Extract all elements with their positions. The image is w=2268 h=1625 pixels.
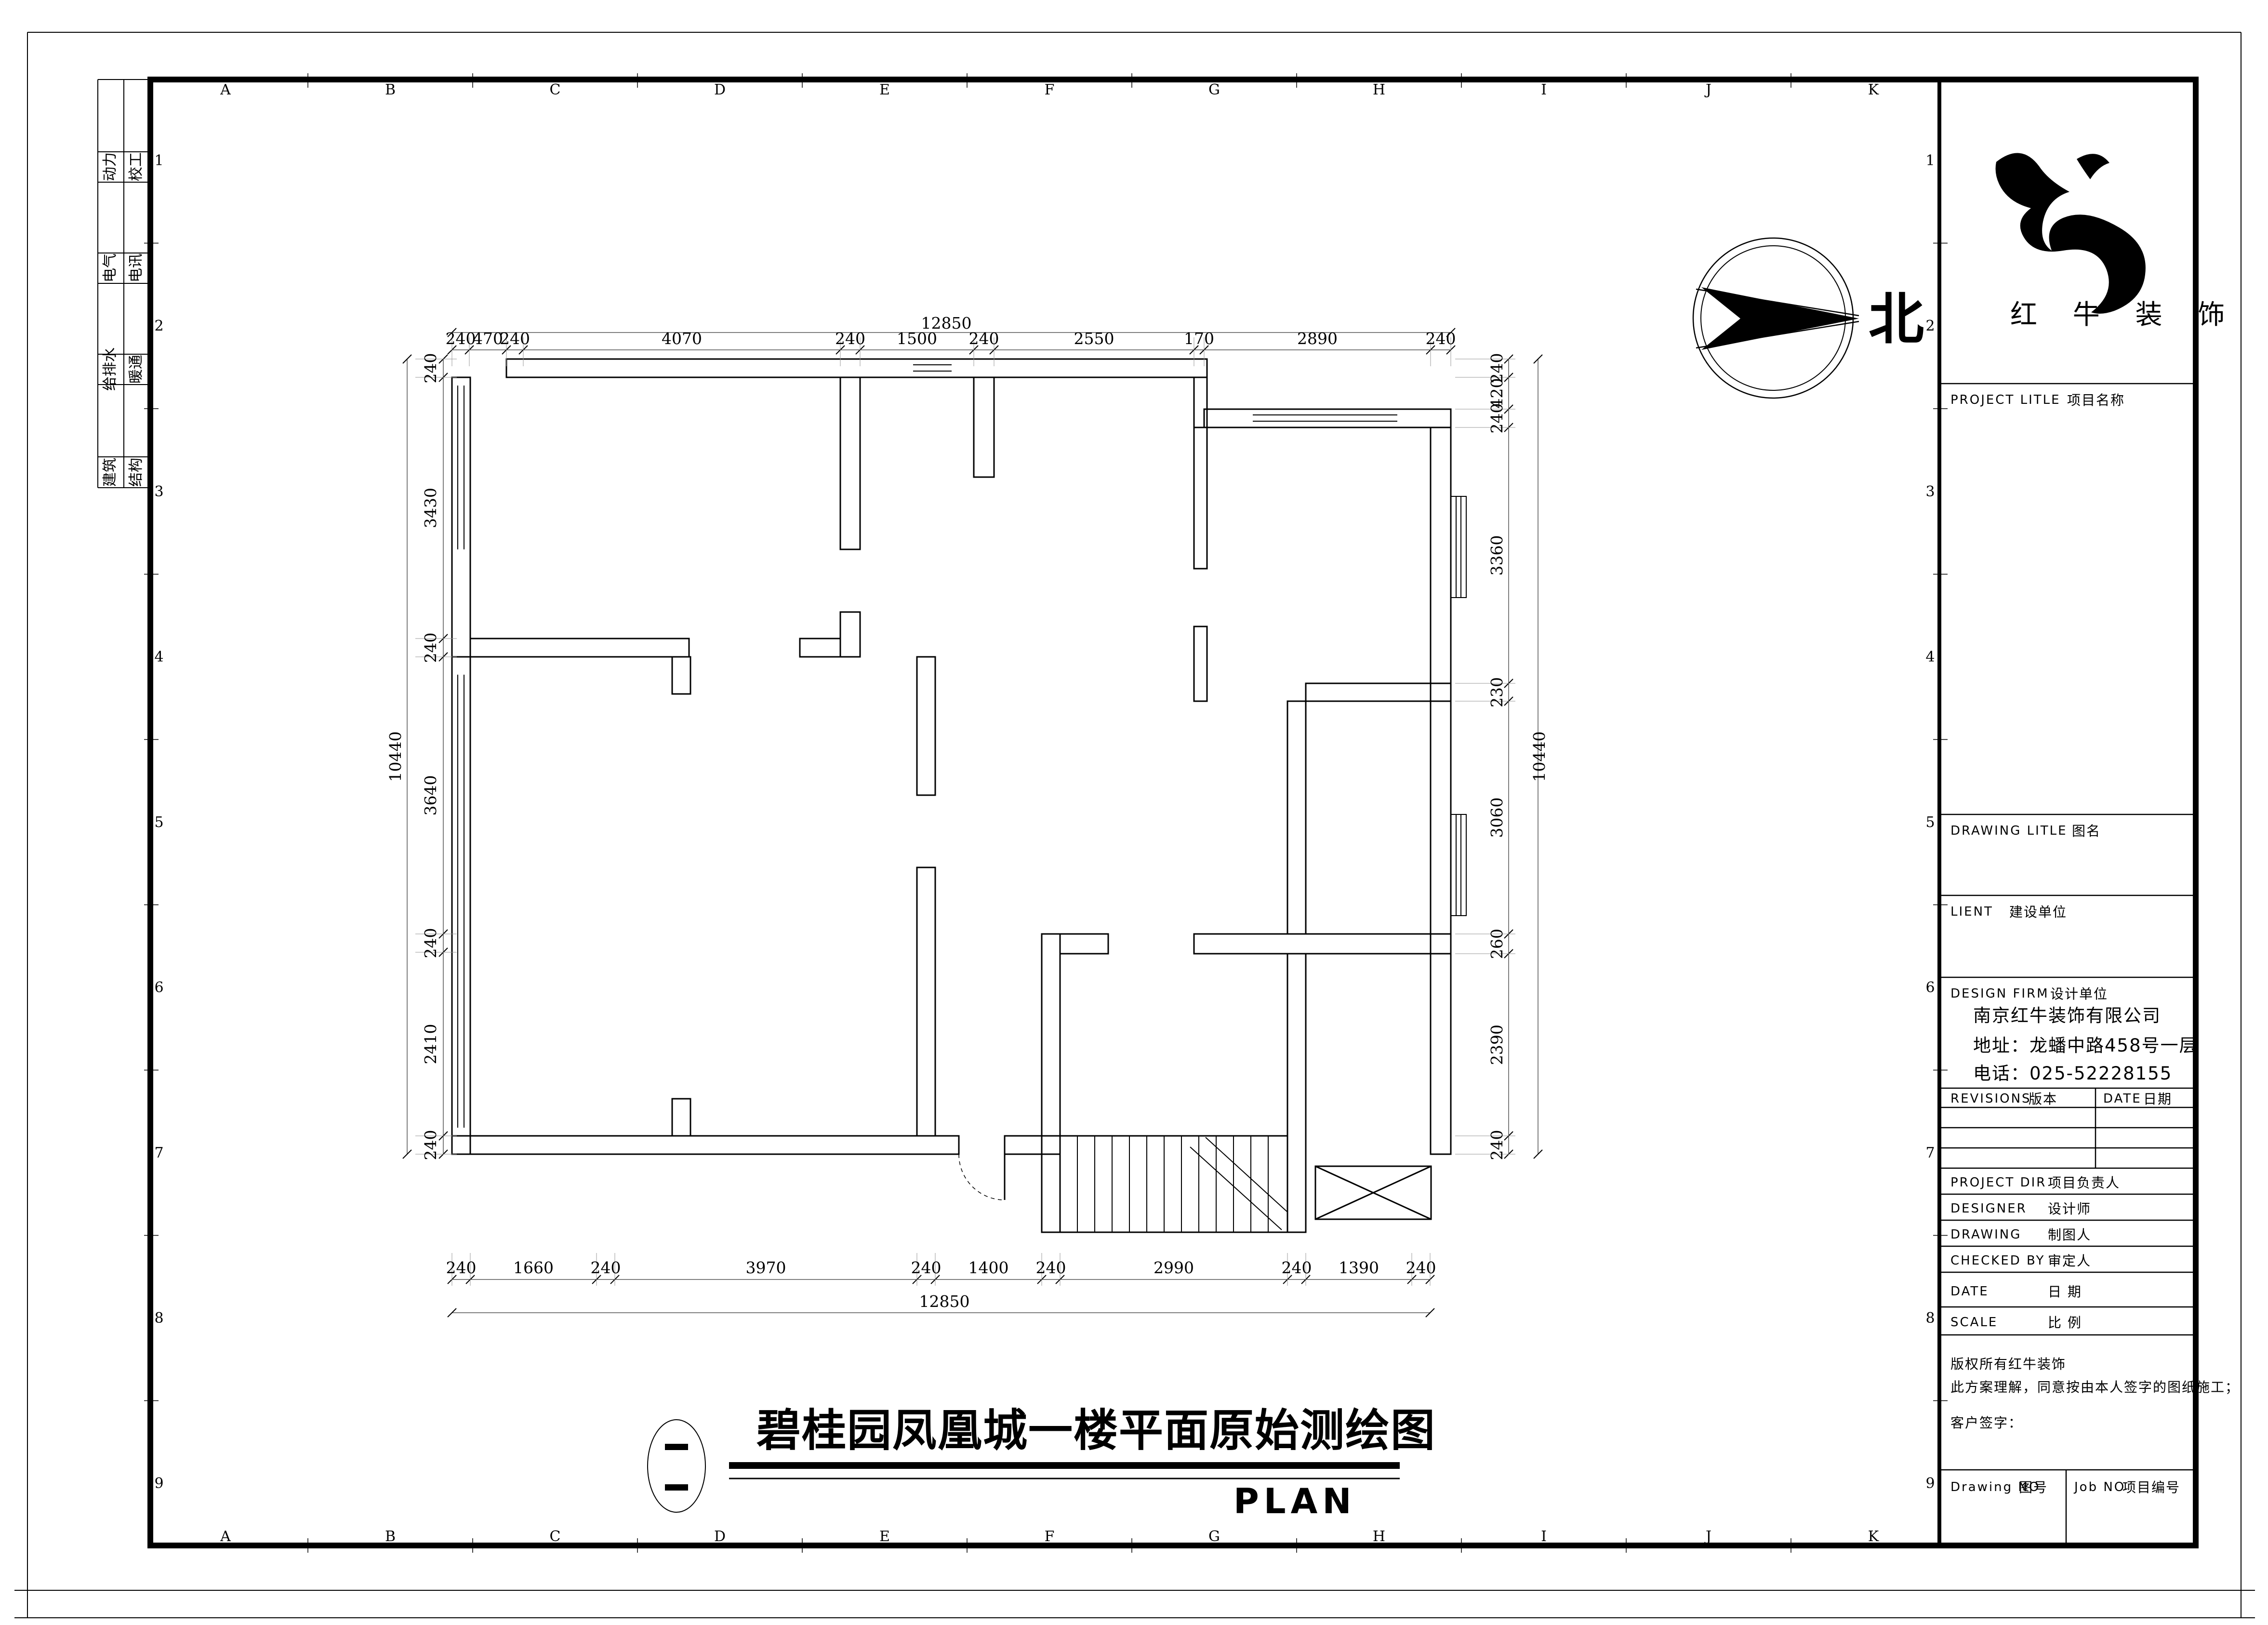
grid-letter-top: H (1373, 81, 1385, 98)
dim-bottom-value: 240 (1036, 1258, 1066, 1277)
title-bubble-dash-bottom (665, 1484, 688, 1491)
grid-number-left: 2 (154, 318, 163, 334)
project-title-label-zh: 项目名称 (2067, 392, 2125, 408)
grid-letter-bottom: J (1704, 1528, 1711, 1545)
design-firm-label-zh: 设计单位 (2050, 986, 2108, 1002)
drawing-by-label-zh: 制图人 (2048, 1227, 2091, 1243)
dim-top-value: 2890 (1297, 329, 1338, 348)
stair-break-line (1190, 1137, 1287, 1230)
signoff-left-label: 电气 (102, 253, 119, 282)
dim-right-overall: 10440 (1530, 732, 1549, 782)
dim-top-value: 2550 (1074, 329, 1114, 348)
signoff-left-label: 动力 (102, 152, 119, 181)
dim-bottom-value: 1660 (513, 1258, 554, 1277)
designer-label-zh: 设计师 (2048, 1201, 2091, 1217)
grid-letter-bottom: A (220, 1528, 231, 1545)
logo-text: 红 牛 装 饰 (2010, 299, 2238, 331)
grid-number-left: 8 (154, 1310, 163, 1327)
dim-right-value: 240 (1487, 1130, 1506, 1160)
title-underline-thick (729, 1462, 1400, 1469)
floor-plan-walls (452, 359, 1451, 1232)
designer-label-en: DESIGNER (1950, 1201, 2027, 1216)
job-no-label-en: Job NO (2073, 1480, 2125, 1494)
dim-right-value: 2390 (1487, 1025, 1506, 1065)
grid-number-left: 7 (154, 1145, 163, 1161)
client-label-zh: 建设单位 (2009, 904, 2067, 920)
checked-by-label-zh: 审定人 (2048, 1253, 2091, 1269)
client-label-en: LIENT (1950, 905, 1993, 919)
grid-letter-top: D (714, 81, 726, 98)
signoff-left-label: 建筑 (102, 458, 119, 487)
logo-flick-icon (2077, 154, 2109, 179)
dim-top-value: 240 (446, 329, 476, 348)
drawing-by-label-en: DRAWING (1950, 1227, 2021, 1242)
dim-right-value: 260 (1487, 929, 1506, 959)
grid-number-right: 7 (1925, 1145, 1935, 1161)
dim-top-overall: 12850 (921, 314, 972, 333)
dim-right-value: 3360 (1487, 535, 1506, 576)
dim-top-value: 240 (969, 329, 999, 348)
grid-number-left: 1 (154, 152, 163, 169)
grid-number-right: 2 (1925, 318, 1935, 334)
drawing-title-label-zh: 图名 (2072, 823, 2101, 839)
checked-by-label-en: CHECKED BY (1950, 1253, 2045, 1268)
project-dir-label-zh: 项目负责人 (2048, 1175, 2120, 1191)
dim-left-value: 240 (421, 928, 440, 959)
windows (458, 365, 1466, 1128)
signoff-left-label: 给排水 (102, 347, 119, 391)
paper-edges (14, 32, 2255, 1618)
grid-letter-bottom: B (385, 1528, 396, 1545)
grid-number-right: 4 (1925, 649, 1935, 666)
dim-left-value: 3640 (421, 775, 440, 816)
date-row-label-en: DATE (1950, 1284, 1989, 1299)
job-no-label-zh: 项目编号 (2122, 1479, 2180, 1495)
copyright-line2: 此方案理解，同意按由本人签字的图纸施工； (1950, 1379, 2240, 1395)
dim-top-value: 470 (473, 329, 503, 348)
grid-letter-top: B (385, 81, 396, 98)
grid-letter-bottom: K (1868, 1528, 1879, 1545)
stair-treads (1077, 1136, 1268, 1232)
grid-letter-bottom: F (1045, 1528, 1055, 1545)
grid-letter-top: A (220, 81, 231, 98)
dim-left-value: 2410 (421, 1024, 440, 1065)
grid-letter-bottom: I (1541, 1528, 1547, 1545)
plan-title: 碧桂园凤凰城一楼平面原始测绘图 (756, 1405, 1436, 1456)
dim-left-value: 240 (421, 633, 440, 663)
company-address: 地址：龙蟠中路458号一层 (1973, 1035, 2198, 1056)
north-label: 北 (1869, 287, 1924, 352)
date-row-label-zh: 日 期 (2048, 1284, 2082, 1300)
grid-number-right: 9 (1925, 1475, 1935, 1492)
grid-number-right: 8 (1925, 1310, 1935, 1327)
grid-letter-top: G (1208, 81, 1220, 98)
logo-swirl-icon (1996, 153, 2146, 314)
dim-left-value: 240 (421, 353, 440, 384)
dim-bottom-value: 3970 (746, 1258, 786, 1277)
grid-letter-top: C (550, 81, 561, 98)
grid-letter-top: F (1045, 81, 1055, 98)
dim-right-value: 240 (1487, 403, 1506, 434)
grid-letter-top: J (1704, 81, 1711, 98)
date-col-label-en: DATE (2103, 1092, 2142, 1106)
design-firm-label-en: DESIGN FIRM (1950, 986, 2049, 1001)
grid-letter-bottom: D (714, 1528, 726, 1545)
grid-letter-bottom: G (1208, 1528, 1220, 1545)
dim-top-value: 240 (1426, 329, 1456, 348)
project-dir-label-en: PROJECT DIR (1950, 1175, 2046, 1190)
grid-letter-top: E (879, 81, 890, 98)
dim-bottom-value: 240 (446, 1258, 477, 1277)
drawing-no-label-zh: 图号 (2019, 1479, 2048, 1495)
title-bubble (648, 1420, 705, 1512)
plan-subtitle: PLAN (1233, 1481, 1356, 1521)
signoff-labels: 动力校工电气电讯给排水暖通建筑结构 (102, 152, 145, 487)
drawing-title-label-en: DRAWING LITLE (1950, 824, 2068, 838)
north-arrow-icon (1701, 287, 1859, 350)
grid-number-left: 5 (154, 814, 163, 831)
grid-number-right: 5 (1925, 814, 1935, 831)
grid-letter-top: I (1541, 81, 1547, 98)
dim-bottom-value: 240 (1406, 1258, 1436, 1277)
dim-right-value: 3060 (1487, 798, 1506, 838)
grid-number-right: 3 (1925, 483, 1935, 500)
copyright-line1: 版权所有红牛装饰 (1950, 1356, 2066, 1372)
grid-number-right: 1 (1925, 152, 1935, 169)
project-title-label-en: PROJECT LITLE (1950, 393, 2061, 407)
dim-bottom-value: 2990 (1154, 1258, 1194, 1277)
signoff-right-label: 电讯 (128, 253, 145, 282)
entry-door (959, 1154, 1005, 1200)
grid-letter-bottom: C (550, 1528, 561, 1545)
grid-references: AABBCCDDEEFFGGHHIIJJKK112233445566778899 (144, 73, 1948, 1553)
company-name: 南京红牛装饰有限公司 (1973, 1005, 2161, 1026)
dim-right-value: 230 (1487, 677, 1506, 707)
signoff-right-label: 结构 (128, 458, 145, 487)
grid-number-left: 9 (154, 1475, 163, 1492)
signoff-right-label: 校工 (128, 152, 145, 181)
grid-letter-top: K (1868, 81, 1879, 98)
dim-top-value: 4070 (662, 329, 702, 348)
scale-row-label-zh: 比 例 (2048, 1315, 2082, 1331)
dim-left-overall: 10440 (386, 732, 405, 782)
dim-bottom-value: 240 (591, 1258, 621, 1277)
dim-top-value: 240 (835, 329, 865, 348)
dim-bottom-value: 1390 (1339, 1258, 1379, 1277)
grid-number-left: 4 (154, 649, 163, 666)
north-compass: 北 (1693, 238, 1924, 398)
revisions-label-en: REVISIONS (1950, 1092, 2031, 1106)
grid-number-left: 3 (154, 483, 163, 500)
dim-left-value: 3430 (421, 488, 440, 528)
dim-top-value: 240 (500, 329, 530, 348)
company-logo: 红 牛 装 饰 (1996, 153, 2239, 331)
dim-bottom-value: 240 (911, 1258, 942, 1277)
grid-number-right: 6 (1925, 979, 1935, 996)
grid-letter-bottom: E (879, 1528, 890, 1545)
dim-bottom-overall: 12850 (919, 1292, 970, 1311)
drawing-sheet: 动力校工电气电讯给排水暖通建筑结构 (0, 0, 2268, 1625)
grid-number-left: 6 (154, 979, 163, 996)
dim-bottom-value: 1400 (968, 1258, 1009, 1277)
revisions-label-zh: 版本 (2029, 1091, 2057, 1107)
plan-title-group: 碧桂园凤凰城一楼平面原始测绘图 PLAN (648, 1405, 1436, 1521)
title-bubble-dash-top (665, 1444, 688, 1450)
dim-left-value: 240 (421, 1130, 440, 1160)
client-sign-label: 客户签字： (1950, 1415, 2023, 1431)
signoff-table (98, 80, 150, 488)
grid-letter-bottom: H (1373, 1528, 1385, 1545)
date-col-label-zh: 日期 (2143, 1091, 2172, 1107)
company-phone: 电话：025-52228155 (1973, 1063, 2172, 1084)
signoff-right-label: 暖通 (128, 355, 145, 384)
dim-top-value: 170 (1184, 329, 1214, 348)
dim-bottom-value: 240 (1282, 1258, 1312, 1277)
scale-row-label-en: SCALE (1950, 1315, 1998, 1330)
